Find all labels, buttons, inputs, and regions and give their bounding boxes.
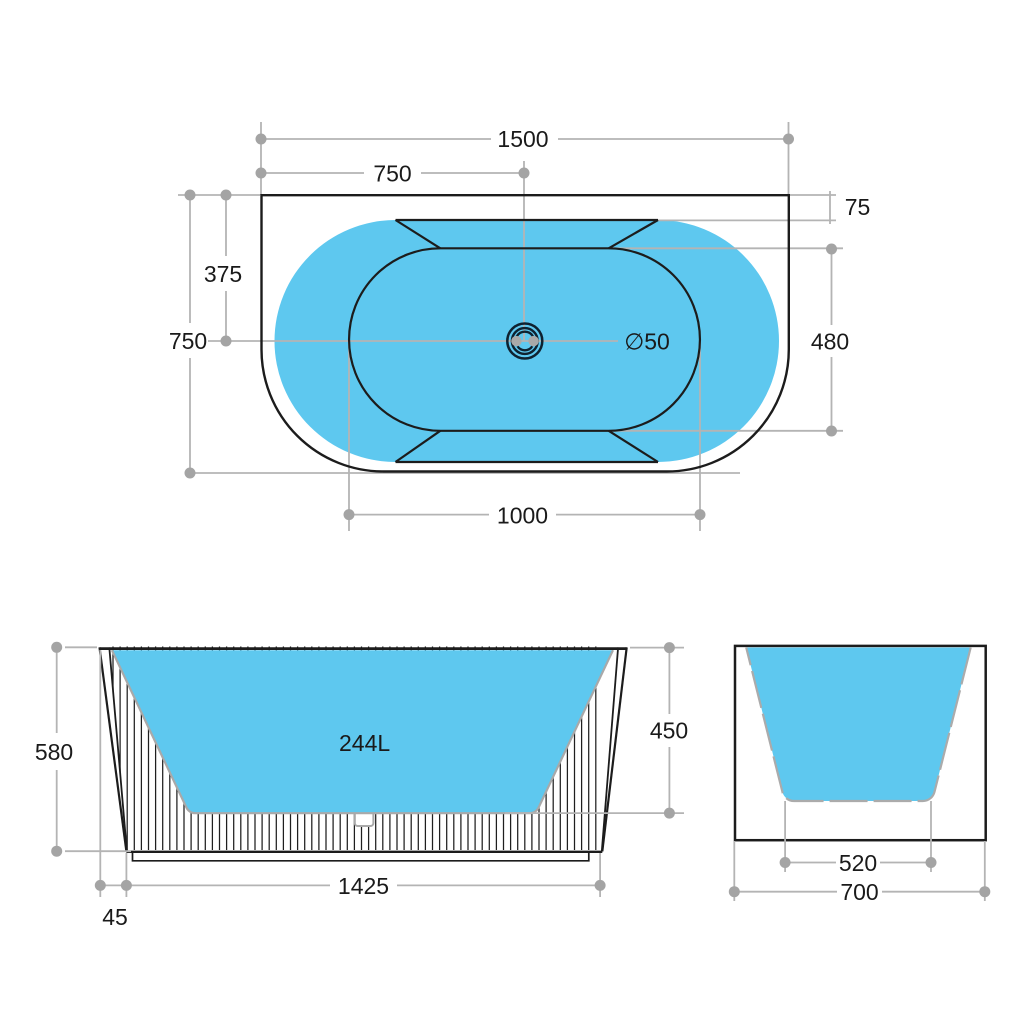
svg-text:1000: 1000: [497, 503, 548, 529]
svg-text:750: 750: [169, 328, 207, 354]
svg-text:375: 375: [204, 261, 242, 287]
svg-text:520: 520: [839, 850, 877, 876]
svg-text:450: 450: [650, 718, 688, 744]
svg-text:75: 75: [845, 194, 871, 220]
svg-text:∅50: ∅50: [624, 329, 670, 355]
svg-text:244L: 244L: [339, 730, 390, 756]
svg-text:45: 45: [102, 904, 128, 930]
svg-text:750: 750: [373, 161, 411, 187]
svg-text:1425: 1425: [338, 873, 389, 899]
svg-text:580: 580: [35, 739, 73, 765]
svg-text:700: 700: [840, 879, 878, 905]
svg-text:480: 480: [811, 329, 849, 355]
svg-text:1500: 1500: [497, 126, 548, 152]
